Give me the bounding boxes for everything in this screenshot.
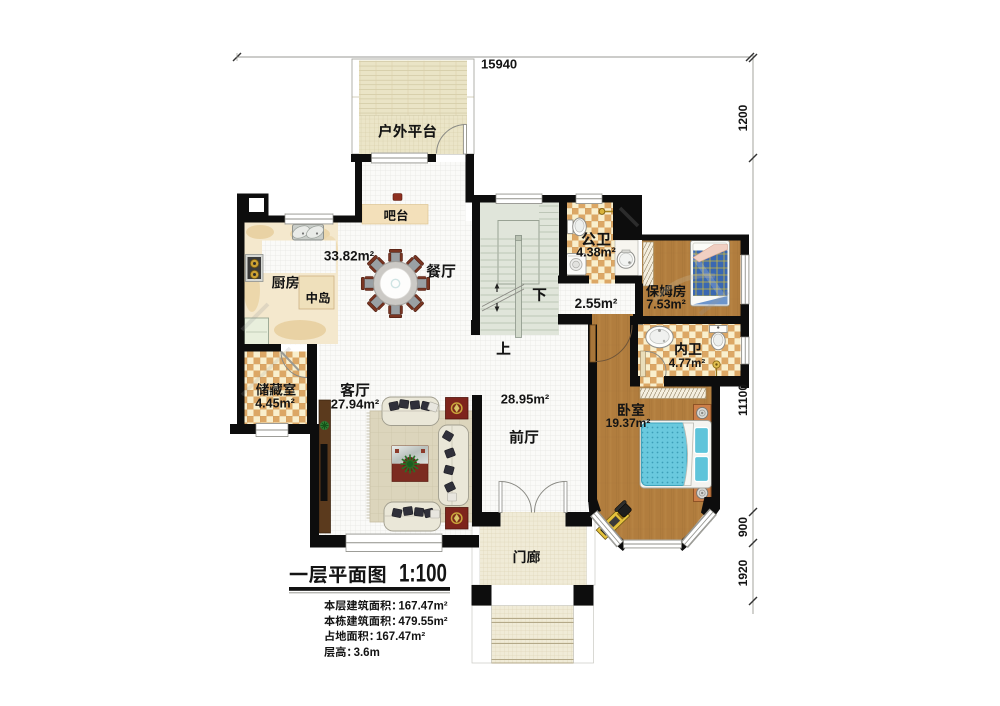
svg-text:7.53m²: 7.53m²	[646, 298, 686, 312]
svg-text:4.77m²: 4.77m²	[669, 358, 706, 370]
svg-text:19.37m²: 19.37m²	[606, 416, 651, 430]
svg-text:11100: 11100	[736, 384, 750, 416]
svg-text:28.95m²: 28.95m²	[501, 392, 550, 407]
svg-text:4.45m²: 4.45m²	[255, 397, 295, 411]
svg-text:3.6m: 3.6m	[354, 647, 380, 659]
svg-text:1:100: 1:100	[399, 560, 447, 588]
svg-text:167.47m²: 167.47m²	[376, 631, 425, 643]
svg-text:2.55m²: 2.55m²	[575, 296, 618, 311]
svg-text:1920: 1920	[736, 559, 750, 586]
svg-text:4.38m²: 4.38m²	[576, 246, 616, 260]
svg-text:1200: 1200	[736, 104, 750, 131]
svg-text:27.94m²: 27.94m²	[331, 397, 380, 412]
svg-text:15940: 15940	[481, 57, 517, 72]
svg-text:479.55m²: 479.55m²	[398, 616, 447, 628]
svg-text:167.47m²: 167.47m²	[398, 601, 447, 613]
svg-text:33.82m²: 33.82m²	[324, 249, 375, 264]
svg-text:900: 900	[736, 517, 750, 537]
